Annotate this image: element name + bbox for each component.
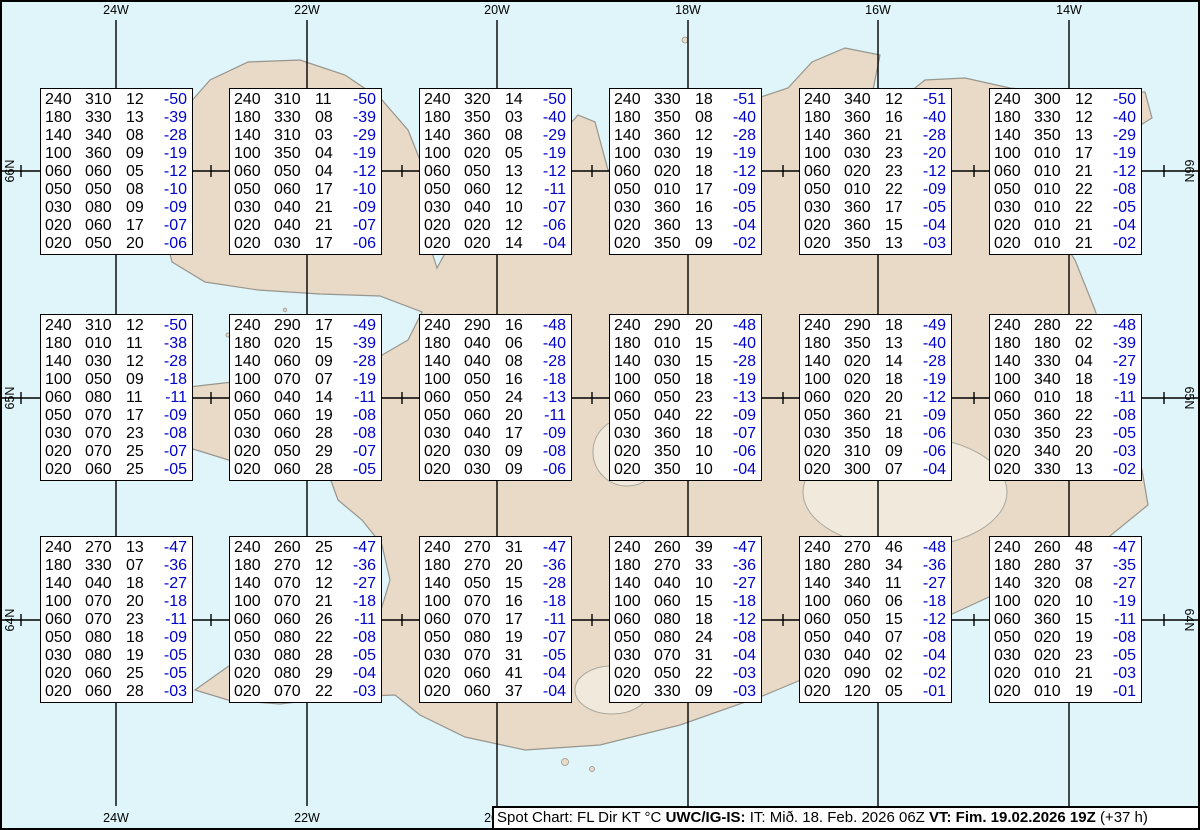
spot-cell-temp: -05 <box>724 199 756 216</box>
spot-row: 02006025-05 <box>45 665 187 682</box>
spot-cell-kt: 15 <box>695 335 717 352</box>
spot-cell-dir: 280 <box>1034 557 1064 574</box>
spot-cell-kt: 11 <box>126 389 148 406</box>
spot-cell-dir: 040 <box>274 199 304 216</box>
spot-cell-dir: 350 <box>654 109 684 126</box>
spot-row: 05008024-08 <box>614 629 756 646</box>
spot-cell-temp: -09 <box>724 407 756 424</box>
spot-cell-temp: -39 <box>155 109 187 126</box>
spot-cell-dir: 120 <box>844 683 874 700</box>
spot-row: 03004002-04 <box>804 647 946 664</box>
spot-cell-temp: -09 <box>534 425 566 442</box>
spot-cell-dir: 010 <box>654 335 684 352</box>
spot-cell-dir: 010 <box>85 335 115 352</box>
spot-cell-temp: -12 <box>724 611 756 628</box>
spot-row: 03008028-05 <box>234 647 376 664</box>
spot-row: 02036013-04 <box>614 217 756 234</box>
spot-table: 24026025-4718027012-3614007012-271000702… <box>229 536 382 703</box>
spot-cell-dir: 350 <box>274 145 304 162</box>
spot-cell-kt: 15 <box>885 217 907 234</box>
spot-row: 02034020-03 <box>994 443 1136 460</box>
spot-table: 24026048-4718028037-3514032008-271000201… <box>989 536 1142 703</box>
spot-row: 10007007-19 <box>234 371 376 388</box>
spot-cell-kt: 20 <box>885 389 907 406</box>
spot-cell-fl: 030 <box>804 647 834 664</box>
spot-cell-fl: 030 <box>424 425 454 442</box>
spot-cell-kt: 21 <box>1075 217 1097 234</box>
spot-cell-kt: 15 <box>505 575 527 592</box>
spot-cell-temp: -27 <box>914 575 946 592</box>
spot-cell-kt: 18 <box>695 163 717 180</box>
spot-cell-kt: 15 <box>695 593 717 610</box>
spot-cell-temp: -48 <box>534 317 566 334</box>
spot-row: 24029017-49 <box>234 317 376 334</box>
spot-cell-dir: 010 <box>654 181 684 198</box>
spot-row: 18027012-36 <box>234 557 376 574</box>
spot-cell-fl: 050 <box>804 407 834 424</box>
spot-cell-kt: 17 <box>126 407 148 424</box>
spot-cell-kt: 17 <box>126 217 148 234</box>
spot-cell-dir: 360 <box>464 127 494 144</box>
spot-cell-kt: 18 <box>885 317 907 334</box>
latitude-label-left: 65N <box>3 387 17 410</box>
spot-cell-temp: -04 <box>724 461 756 478</box>
spot-cell-kt: 18 <box>126 575 148 592</box>
spot-cell-fl: 020 <box>424 443 454 460</box>
spot-cell-temp: -11 <box>534 611 566 628</box>
spot-row: 05007017-09 <box>45 407 187 424</box>
spot-row: 18004006-40 <box>424 335 566 352</box>
spot-cell-kt: 25 <box>126 461 148 478</box>
spot-cell-kt: 17 <box>885 199 907 216</box>
spot-cell-fl: 020 <box>424 683 454 700</box>
spot-cell-kt: 21 <box>315 593 337 610</box>
spot-row: 03004017-09 <box>424 425 566 442</box>
spot-cell-fl: 100 <box>45 145 75 162</box>
spot-cell-kt: 12 <box>126 317 148 334</box>
spot-cell-temp: -03 <box>344 683 376 700</box>
spot-cell-fl: 030 <box>804 199 834 216</box>
spot-cell-fl: 240 <box>614 539 644 556</box>
spot-cell-dir: 060 <box>274 461 304 478</box>
spot-cell-dir: 330 <box>85 557 115 574</box>
spot-cell-kt: 09 <box>505 461 527 478</box>
spot-cell-fl: 180 <box>45 109 75 126</box>
spot-cell-kt: 19 <box>315 407 337 424</box>
spot-row: 14036008-29 <box>424 127 566 144</box>
spot-row: 06001018-11 <box>994 389 1136 406</box>
spot-row: 14033004-27 <box>994 353 1136 370</box>
spot-cell-dir: 270 <box>464 557 494 574</box>
spot-row: 18033013-39 <box>45 109 187 126</box>
spot-cell-kt: 23 <box>695 389 717 406</box>
spot-cell-dir: 050 <box>654 371 684 388</box>
spot-cell-temp: -08 <box>1104 629 1136 646</box>
spot-row: 05036022-08 <box>994 407 1136 424</box>
spot-row: 05006020-11 <box>424 407 566 424</box>
spot-cell-dir: 350 <box>464 109 494 126</box>
spot-cell-dir: 340 <box>1034 443 1064 460</box>
spot-cell-temp: -08 <box>344 425 376 442</box>
spot-table: 24031012-5018033013-3914034008-281003600… <box>40 88 193 255</box>
spot-cell-kt: 12 <box>1075 91 1097 108</box>
spot-cell-fl: 050 <box>234 629 264 646</box>
spot-cell-dir: 360 <box>844 109 874 126</box>
spot-cell-kt: 17 <box>315 235 337 252</box>
spot-cell-temp: -03 <box>155 683 187 700</box>
spot-cell-fl: 240 <box>994 91 1024 108</box>
spot-row: 24027031-47 <box>424 539 566 556</box>
spot-row: 05001022-09 <box>804 181 946 198</box>
spot-cell-dir: 010 <box>1034 665 1064 682</box>
spot-cell-fl: 240 <box>614 91 644 108</box>
spot-cell-kt: 39 <box>695 539 717 556</box>
spot-cell-dir: 330 <box>274 109 304 126</box>
spot-cell-dir: 270 <box>654 557 684 574</box>
spot-cell-fl: 050 <box>804 629 834 646</box>
spot-cell-fl: 180 <box>424 335 454 352</box>
spot-cell-dir: 290 <box>464 317 494 334</box>
spot-cell-kt: 13 <box>126 539 148 556</box>
spot-cell-kt: 20 <box>126 235 148 252</box>
spot-cell-temp: -19 <box>534 145 566 162</box>
spot-cell-temp: -07 <box>344 217 376 234</box>
spot-cell-fl: 030 <box>234 199 264 216</box>
spot-cell-dir: 340 <box>844 91 874 108</box>
spot-row: 03004021-09 <box>234 199 376 216</box>
spot-row: 02031009-06 <box>804 443 946 460</box>
spot-cell-fl: 140 <box>994 575 1024 592</box>
spot-cell-kt: 16 <box>885 109 907 126</box>
spot-cell-fl: 180 <box>614 109 644 126</box>
spot-cell-dir: 050 <box>464 163 494 180</box>
spot-cell-temp: -02 <box>1104 235 1136 252</box>
spot-table: 24029018-4918035013-4014002014-281000201… <box>799 314 952 481</box>
spot-cell-temp: -40 <box>914 335 946 352</box>
spot-cell-dir: 080 <box>464 629 494 646</box>
spot-row: 18036016-40 <box>804 109 946 126</box>
spot-cell-dir: 270 <box>844 539 874 556</box>
spot-cell-temp: -27 <box>724 575 756 592</box>
spot-cell-kt: 28 <box>315 461 337 478</box>
spot-cell-dir: 320 <box>464 91 494 108</box>
spot-cell-fl: 240 <box>424 91 454 108</box>
spot-cell-dir: 340 <box>1034 371 1064 388</box>
spot-cell-temp: -09 <box>914 181 946 198</box>
spot-cell-dir: 020 <box>844 371 874 388</box>
spot-cell-temp: -05 <box>155 647 187 664</box>
spot-cell-dir: 010 <box>1034 235 1064 252</box>
spot-cell-kt: 28 <box>315 425 337 442</box>
spot-row: 06005024-13 <box>424 389 566 406</box>
spot-row: 02035009-02 <box>614 235 756 252</box>
spot-cell-fl: 020 <box>994 235 1024 252</box>
spot-cell-fl: 020 <box>234 443 264 460</box>
spot-row: 06001021-12 <box>994 163 1136 180</box>
spot-cell-dir: 080 <box>85 389 115 406</box>
spot-row: 24031012-50 <box>45 317 187 334</box>
spot-row: 18028034-36 <box>804 557 946 574</box>
spot-cell-temp: -12 <box>1104 163 1136 180</box>
spot-cell-dir: 030 <box>654 353 684 370</box>
spot-cell-fl: 240 <box>424 539 454 556</box>
spot-cell-temp: -48 <box>914 539 946 556</box>
spot-cell-dir: 280 <box>1034 317 1064 334</box>
spot-cell-fl: 180 <box>994 557 1024 574</box>
spot-row: 24029016-48 <box>424 317 566 334</box>
legend-product-label: Spot Chart: FL Dir KT °C <box>497 809 661 826</box>
spot-cell-fl: 240 <box>45 91 75 108</box>
spot-cell-temp: -09 <box>155 629 187 646</box>
spot-row: 06006026-11 <box>234 611 376 628</box>
spot-row: 02001019-01 <box>994 683 1136 700</box>
spot-cell-kt: 09 <box>505 443 527 460</box>
spot-cell-temp: -40 <box>1104 109 1136 126</box>
spot-cell-temp: -03 <box>1104 443 1136 460</box>
spot-cell-dir: 020 <box>1034 629 1064 646</box>
spot-cell-temp: -02 <box>1104 461 1136 478</box>
spot-cell-kt: 10 <box>695 461 717 478</box>
spot-row: 02030007-04 <box>804 461 946 478</box>
spot-cell-dir: 020 <box>464 235 494 252</box>
spot-cell-dir: 050 <box>654 665 684 682</box>
spot-cell-dir: 350 <box>844 335 874 352</box>
spot-cell-kt: 18 <box>695 371 717 388</box>
spot-cell-fl: 020 <box>994 443 1024 460</box>
spot-cell-temp: -50 <box>1104 91 1136 108</box>
spot-cell-temp: -39 <box>344 109 376 126</box>
spot-cell-dir: 060 <box>274 425 304 442</box>
spot-cell-temp: -39 <box>1104 335 1136 352</box>
spot-cell-fl: 100 <box>234 145 264 162</box>
spot-cell-fl: 140 <box>424 127 454 144</box>
spot-cell-dir: 290 <box>654 317 684 334</box>
spot-row: 02003009-08 <box>424 443 566 460</box>
spot-row: 24027046-48 <box>804 539 946 556</box>
spot-cell-kt: 21 <box>885 407 907 424</box>
spot-row: 03036017-05 <box>804 199 946 216</box>
spot-cell-kt: 06 <box>885 593 907 610</box>
spot-cell-dir: 300 <box>844 461 874 478</box>
spot-cell-dir: 050 <box>654 389 684 406</box>
spot-cell-fl: 020 <box>424 461 454 478</box>
spot-cell-fl: 240 <box>994 317 1024 334</box>
spot-cell-fl: 030 <box>45 647 75 664</box>
spot-row: 02036015-04 <box>804 217 946 234</box>
spot-cell-fl: 100 <box>45 371 75 388</box>
spot-cell-kt: 10 <box>695 443 717 460</box>
spot-cell-kt: 15 <box>695 353 717 370</box>
latitude-label-left: 66N <box>3 160 17 183</box>
spot-table: 24034012-5118036016-4014036021-281000302… <box>799 88 952 255</box>
spot-cell-kt: 22 <box>315 683 337 700</box>
spot-cell-fl: 020 <box>614 683 644 700</box>
spot-cell-fl: 240 <box>614 317 644 334</box>
spot-row: 14004010-27 <box>614 575 756 592</box>
spot-cell-temp: -18 <box>344 593 376 610</box>
spot-cell-dir: 360 <box>1034 407 1064 424</box>
spot-cell-fl: 050 <box>424 181 454 198</box>
spot-cell-dir: 010 <box>1034 181 1064 198</box>
spot-cell-kt: 09 <box>315 353 337 370</box>
spot-row: 10036009-19 <box>45 145 187 162</box>
spot-cell-dir: 070 <box>85 611 115 628</box>
spot-cell-dir: 080 <box>274 665 304 682</box>
spot-cell-fl: 020 <box>804 443 834 460</box>
spot-row: 10007021-18 <box>234 593 376 610</box>
spot-chart-canvas: 24W24W22W22W20W20W18W18W16W16W14W14W66N6… <box>0 0 1200 830</box>
spot-cell-temp: -36 <box>914 557 946 574</box>
spot-table: 24028022-4818018002-3914033004-271003401… <box>989 314 1142 481</box>
spot-cell-dir: 350 <box>654 461 684 478</box>
spot-cell-temp: -03 <box>1104 665 1136 682</box>
spot-cell-kt: 17 <box>315 317 337 334</box>
spot-cell-kt: 15 <box>885 611 907 628</box>
spot-cell-kt: 17 <box>695 181 717 198</box>
legend-source: UWC/IG-IS: <box>666 809 746 826</box>
spot-cell-dir: 010 <box>1034 145 1064 162</box>
spot-cell-temp: -36 <box>534 557 566 574</box>
spot-cell-temp: -11 <box>1104 389 1136 406</box>
spot-cell-kt: 18 <box>885 371 907 388</box>
spot-cell-temp: -10 <box>155 181 187 198</box>
spot-cell-temp: -06 <box>344 235 376 252</box>
longitude-label-top: 22W <box>294 3 320 17</box>
spot-cell-fl: 030 <box>424 199 454 216</box>
spot-cell-dir: 060 <box>844 593 874 610</box>
spot-cell-fl: 060 <box>994 611 1024 628</box>
spot-cell-temp: -18 <box>724 593 756 610</box>
spot-cell-temp: -07 <box>724 425 756 442</box>
spot-cell-kt: 21 <box>1075 235 1097 252</box>
spot-row: 02012005-01 <box>804 683 946 700</box>
spot-cell-fl: 020 <box>804 217 834 234</box>
spot-cell-dir: 030 <box>844 145 874 162</box>
spot-row: 14036021-28 <box>804 127 946 144</box>
spot-row: 05006019-08 <box>234 407 376 424</box>
spot-cell-temp: -06 <box>724 443 756 460</box>
spot-cell-fl: 030 <box>45 425 75 442</box>
spot-cell-fl: 240 <box>234 539 264 556</box>
spot-cell-fl: 240 <box>234 91 264 108</box>
spot-cell-temp: -05 <box>1104 647 1136 664</box>
spot-cell-dir: 360 <box>654 127 684 144</box>
spot-cell-dir: 350 <box>654 235 684 252</box>
spot-cell-temp: -19 <box>914 371 946 388</box>
spot-row: 10005018-19 <box>614 371 756 388</box>
spot-cell-dir: 060 <box>464 665 494 682</box>
spot-row: 18001015-40 <box>614 335 756 352</box>
spot-cell-fl: 060 <box>424 163 454 180</box>
spot-cell-kt: 22 <box>885 181 907 198</box>
spot-cell-fl: 020 <box>45 461 75 478</box>
spot-cell-fl: 020 <box>234 683 264 700</box>
spot-cell-kt: 07 <box>126 557 148 574</box>
spot-cell-dir: 070 <box>464 593 494 610</box>
spot-row: 03007023-08 <box>45 425 187 442</box>
spot-table: 24032014-5018035003-4014036008-291000200… <box>419 88 572 255</box>
spot-row: 02003009-06 <box>424 461 566 478</box>
spot-cell-dir: 310 <box>274 91 304 108</box>
spot-cell-kt: 22 <box>1075 407 1097 424</box>
spot-cell-fl: 030 <box>994 647 1024 664</box>
spot-cell-fl: 180 <box>424 557 454 574</box>
spot-cell-temp: -36 <box>724 557 756 574</box>
spot-cell-fl: 180 <box>614 335 644 352</box>
spot-row: 14003015-28 <box>614 353 756 370</box>
spot-cell-temp: -05 <box>155 665 187 682</box>
spot-cell-dir: 180 <box>1034 335 1064 352</box>
spot-row: 06005015-12 <box>804 611 946 628</box>
spot-cell-kt: 13 <box>885 335 907 352</box>
spot-cell-kt: 20 <box>505 407 527 424</box>
spot-row: 18033012-40 <box>994 109 1136 126</box>
spot-cell-kt: 10 <box>695 575 717 592</box>
spot-cell-fl: 020 <box>804 235 834 252</box>
spot-cell-fl: 100 <box>614 371 644 388</box>
spot-cell-dir: 050 <box>274 443 304 460</box>
spot-row: 14004008-28 <box>424 353 566 370</box>
spot-cell-kt: 25 <box>126 665 148 682</box>
spot-row: 02008029-04 <box>234 665 376 682</box>
spot-cell-kt: 31 <box>505 539 527 556</box>
spot-cell-dir: 020 <box>464 145 494 162</box>
spot-cell-temp: -40 <box>534 335 566 352</box>
spot-cell-temp: -04 <box>914 217 946 234</box>
spot-cell-temp: -28 <box>534 353 566 370</box>
spot-cell-kt: 08 <box>315 109 337 126</box>
spot-row: 10005009-18 <box>45 371 187 388</box>
spot-cell-fl: 240 <box>234 317 264 334</box>
spot-cell-fl: 020 <box>45 235 75 252</box>
spot-row: 10003019-19 <box>614 145 756 162</box>
spot-cell-temp: -09 <box>914 407 946 424</box>
spot-cell-fl: 240 <box>804 91 834 108</box>
spot-cell-temp: -06 <box>534 461 566 478</box>
spot-row: 10006006-18 <box>804 593 946 610</box>
spot-cell-temp: -50 <box>344 91 376 108</box>
spot-cell-dir: 050 <box>464 389 494 406</box>
spot-cell-fl: 030 <box>804 425 834 442</box>
spot-row: 06004014-11 <box>234 389 376 406</box>
longitude-label-top: 20W <box>484 3 510 17</box>
spot-row: 18027020-36 <box>424 557 566 574</box>
latitude-label-right: 66N <box>1182 160 1196 183</box>
spot-row: 10002018-19 <box>804 371 946 388</box>
spot-cell-temp: -27 <box>1104 353 1136 370</box>
spot-cell-kt: 09 <box>885 443 907 460</box>
spot-row: 05004022-09 <box>614 407 756 424</box>
spot-cell-dir: 350 <box>844 425 874 442</box>
spot-cell-temp: -28 <box>914 353 946 370</box>
spot-cell-kt: 12 <box>126 91 148 108</box>
spot-cell-fl: 180 <box>804 335 834 352</box>
spot-cell-fl: 020 <box>424 665 454 682</box>
spot-cell-fl: 140 <box>424 575 454 592</box>
spot-cell-kt: 31 <box>695 647 717 664</box>
spot-cell-kt: 12 <box>315 557 337 574</box>
spot-cell-fl: 020 <box>994 683 1024 700</box>
spot-cell-temp: -09 <box>155 407 187 424</box>
spot-cell-fl: 050 <box>614 629 644 646</box>
spot-cell-temp: -08 <box>534 443 566 460</box>
spot-row: 24030012-50 <box>994 91 1136 108</box>
legend-valid-time: VT: Fim. 19.02.2026 19Z <box>929 809 1096 826</box>
spot-row: 18018002-39 <box>994 335 1136 352</box>
spot-row: 02006028-03 <box>45 683 187 700</box>
spot-cell-fl: 050 <box>994 407 1024 424</box>
spot-cell-temp: -27 <box>155 575 187 592</box>
